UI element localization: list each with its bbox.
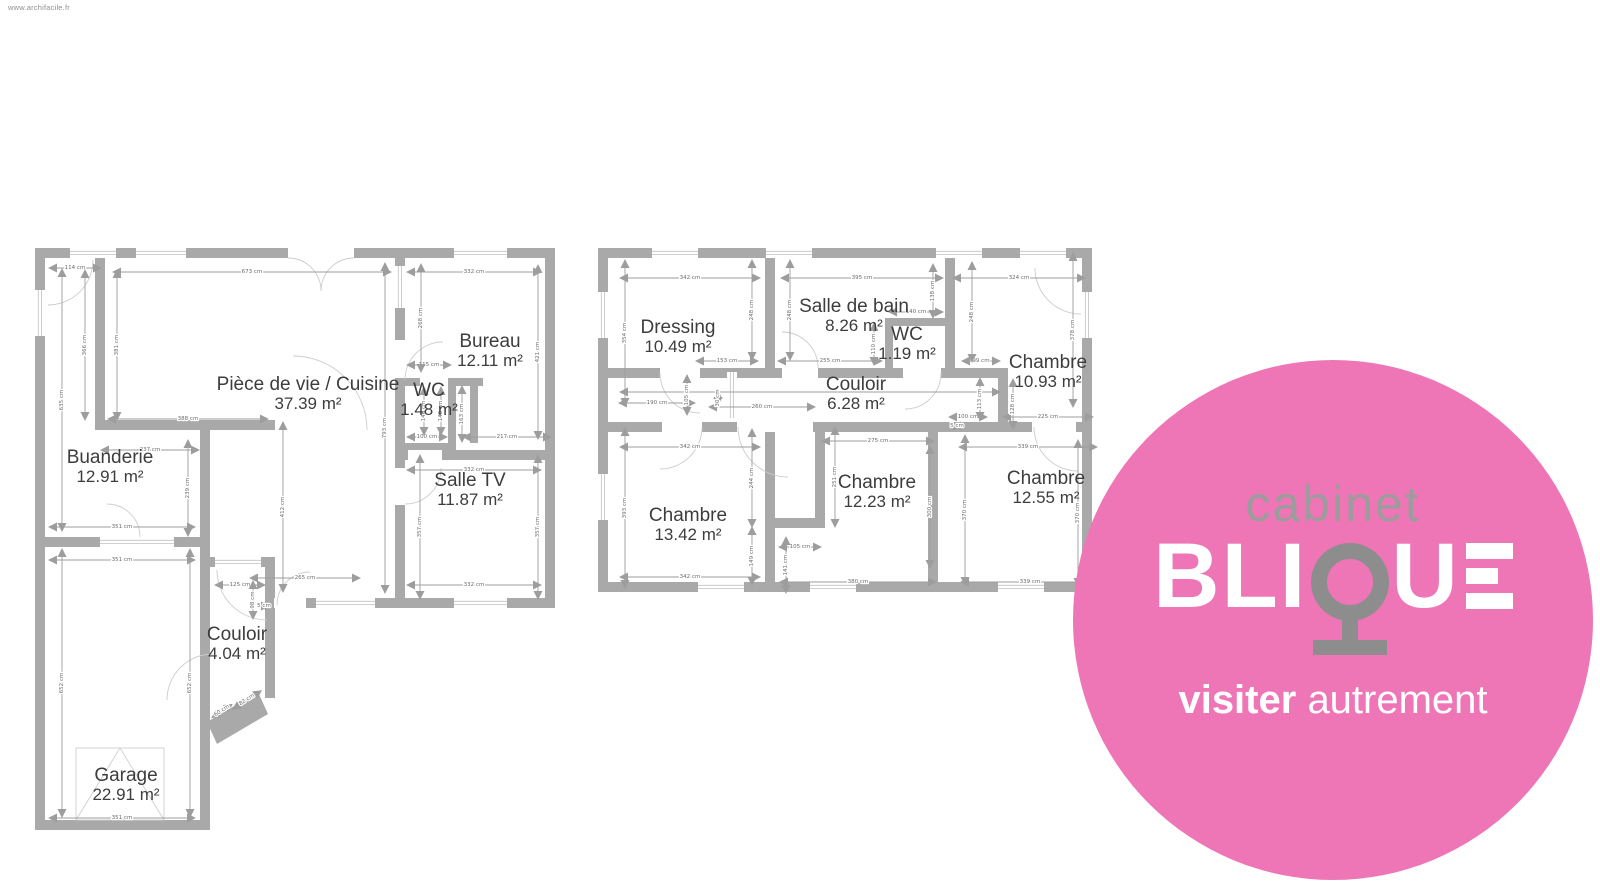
- wall-opening: [766, 248, 812, 258]
- dimension: 393 cm: [622, 428, 628, 588]
- dimension: 421 cm: [535, 265, 541, 439]
- dim-label: 5 cm: [950, 423, 964, 429]
- dim-label: 339 cm: [1018, 444, 1039, 450]
- dim-label: 395 cm: [852, 275, 873, 281]
- dim-label: 99 cm: [972, 358, 989, 364]
- dimension: 351 cm: [49, 557, 195, 563]
- dim-label: 275 cm: [868, 438, 889, 444]
- room-label: Chambre: [1007, 468, 1085, 489]
- dim-label: 393 cm: [622, 498, 628, 519]
- dimension: 635 cm: [59, 269, 65, 531]
- dimension: 370 cm: [962, 435, 968, 585]
- dimension: 163 cm: [459, 386, 465, 442]
- dim-label: 149 cm: [749, 546, 755, 567]
- dimension: 793 cm: [382, 263, 388, 593]
- dim-label: 105 cm: [684, 385, 690, 406]
- room-area: 6.28 m²: [827, 394, 885, 413]
- dim-label: 342 cm: [680, 574, 701, 580]
- dim-label: 366 cm: [82, 335, 88, 356]
- dim-label: 138 cm: [930, 281, 936, 302]
- logo-letters-bli: BLI: [1153, 530, 1307, 622]
- wall-opening: [70, 248, 116, 258]
- dimension: 149 cm: [749, 527, 755, 585]
- wall-opening: [454, 248, 507, 258]
- dimension: 366 cm: [82, 270, 88, 420]
- wall-opening: [662, 422, 702, 432]
- dim-label: 351 cm: [112, 524, 133, 530]
- dimension: 115 cm: [407, 362, 451, 368]
- dim-label: 239 cm: [185, 478, 191, 499]
- dim-label: 332 cm: [464, 582, 485, 588]
- dim-label: 412 cm: [280, 497, 286, 518]
- dim-label: 381 cm: [114, 335, 120, 356]
- dimension: 412 cm: [280, 422, 286, 592]
- dimension: 105 cm: [779, 544, 821, 550]
- wall-opening: [727, 372, 737, 418]
- wall-opening: [316, 598, 375, 608]
- dim-label: 260 cm: [752, 404, 773, 410]
- dimension: 339 cm: [959, 444, 1097, 450]
- dimension: 99 cm: [962, 358, 1000, 364]
- dim-label: 380 cm: [848, 579, 869, 585]
- dim-label: 105 cm: [790, 544, 811, 550]
- logo-letter-u: U: [1391, 530, 1459, 622]
- wall-opening: [395, 340, 405, 378]
- dimension: 332 cm: [407, 582, 541, 588]
- dim-label: 351 cm: [112, 557, 133, 563]
- wall-opening: [737, 422, 783, 432]
- room-area: 11.87 m²: [437, 490, 503, 509]
- dimension: 248 cm: [749, 260, 755, 360]
- wall-opening: [35, 290, 45, 336]
- dimension: 673 cm: [113, 269, 391, 275]
- logo-brand-blique: BLI U: [1153, 530, 1513, 648]
- dim-label: 113 cm: [977, 389, 983, 410]
- dim-label: 128 cm: [1010, 394, 1016, 415]
- dimension: 342 cm: [620, 275, 760, 281]
- dimension: 395 cm: [781, 275, 943, 281]
- dim-label: 100 cm: [958, 414, 979, 420]
- dim-label: 357 cm: [417, 517, 423, 538]
- wall-opening: [454, 598, 507, 608]
- dimension: 105 cm: [684, 375, 690, 415]
- room-label: Salle TV: [434, 470, 506, 491]
- logo-e-glyph: [1466, 543, 1513, 609]
- room-label: Couloir: [207, 624, 268, 645]
- wall-opening: [598, 474, 608, 520]
- dim-label: 354 cm: [622, 323, 628, 344]
- dimension: 652 cm: [59, 549, 65, 817]
- dim-label: 388 cm: [178, 416, 199, 422]
- dimension: 98 cm: [250, 581, 256, 619]
- dim-label: 248 cm: [969, 302, 975, 323]
- room-area: 12.23 m²: [843, 492, 910, 511]
- dimension: 239 cm: [185, 440, 191, 536]
- room-area: 12.11 m²: [457, 351, 523, 370]
- dim-label: 153 cm: [717, 358, 738, 364]
- wall-opening: [598, 292, 608, 338]
- dim-label: 98 cm: [250, 591, 256, 608]
- wall-opening: [136, 248, 186, 258]
- dim-label: 114 cm: [65, 265, 86, 271]
- dim-label: 339 cm: [1020, 579, 1041, 585]
- dimension: 153 cm: [696, 358, 758, 364]
- dim-label: 248 cm: [787, 300, 793, 321]
- wall-opening: [698, 582, 744, 592]
- room-labels: Pièce de vie / Cuisine37.39 m²Bureau12.1…: [67, 331, 524, 804]
- dimension: 324 cm: [953, 275, 1085, 281]
- logo-q-glyph: [1311, 542, 1389, 657]
- room-label: WC: [891, 324, 923, 345]
- room-area: 1.19 m²: [878, 344, 936, 363]
- ground-floor-plan: 114 cm673 cm332 cm115 cm388 cm237 cm351 …: [35, 248, 555, 830]
- dim-label: 673 cm: [242, 269, 263, 275]
- room-area: 10.93 m²: [1014, 372, 1081, 391]
- dim-label: 125 cm: [230, 582, 251, 588]
- dimension: 342 cm: [620, 444, 760, 450]
- dim-label: 370 cm: [962, 500, 968, 521]
- dim-label: 265 cm: [295, 575, 316, 581]
- dim-label: 332 cm: [464, 269, 485, 275]
- dim-label: 342 cm: [680, 275, 701, 281]
- room-label: Buanderie: [67, 447, 154, 468]
- wall-opening: [408, 450, 442, 460]
- dim-label: 793 cm: [382, 418, 388, 439]
- dimension: 275 cm: [822, 438, 934, 444]
- wall-opening: [395, 266, 405, 308]
- room-area: 10.49 m²: [644, 337, 711, 356]
- dimension: 357 cm: [417, 455, 423, 599]
- wall-opening: [936, 248, 982, 258]
- room-area: 37.39 m²: [274, 394, 341, 413]
- dim-label: 100 cm: [417, 434, 438, 440]
- dim-label: 342 cm: [680, 444, 701, 450]
- room-labels: Dressing10.49 m²Salle de bain8.26 m²WC1.…: [641, 296, 1088, 544]
- dim-label: 244 cm: [749, 468, 755, 489]
- dim-label: 190 cm: [647, 400, 668, 406]
- wall-opening: [782, 368, 818, 378]
- dimension: 225 cm: [1003, 414, 1093, 420]
- dimension: 351 cm: [49, 524, 195, 530]
- logo-tagline-light: autrement: [1307, 678, 1487, 722]
- dimension: 244 cm: [749, 429, 755, 527]
- dimension: 652 cm: [187, 549, 193, 817]
- dimension: 248 cm: [969, 262, 975, 362]
- room-label: Bureau: [459, 331, 520, 352]
- logo-tagline: visiter autrement: [1178, 678, 1487, 723]
- dim-label: 268 cm: [418, 308, 424, 329]
- dimension: 357 cm: [535, 455, 541, 599]
- dimension: 248 cm: [787, 260, 793, 360]
- dimension: 342 cm: [620, 574, 760, 580]
- room-label: Couloir: [826, 374, 887, 395]
- dim-label: 115 cm: [419, 362, 440, 368]
- dim-label: 225 cm: [1038, 414, 1059, 420]
- dim-label: 351 cm: [112, 815, 133, 821]
- room-area: 22.91 m²: [92, 785, 159, 804]
- room-area: 12.91 m²: [76, 467, 143, 486]
- dim-label: 141 cm: [783, 555, 789, 576]
- dim-label: 652 cm: [187, 673, 193, 694]
- dimension: 114 cm: [49, 265, 101, 271]
- dim-label: 635 cm: [59, 390, 65, 411]
- agency-logo-badge: cabinet BLI U visiter autrement: [1073, 360, 1593, 880]
- dimension: 332 cm: [407, 269, 541, 275]
- room-label: Chambre: [649, 505, 727, 526]
- dimension: 268 cm: [418, 264, 424, 372]
- dim-label: 217 cm: [497, 434, 518, 440]
- dim-label: 163 cm: [459, 404, 465, 425]
- room-label: WC: [413, 380, 445, 401]
- room-label: Garage: [94, 765, 157, 786]
- dimension: 381 cm: [114, 270, 120, 420]
- dim-label: 30 cm: [715, 389, 721, 406]
- wall-opening: [215, 557, 261, 567]
- wall-opening: [288, 248, 354, 258]
- room-label: Salle de bain: [799, 296, 909, 317]
- wall-opening: [777, 422, 813, 432]
- dimension: 30 cm: [715, 389, 721, 406]
- room-area: 4.04 m²: [208, 644, 266, 663]
- dim-label: 378 cm: [1070, 320, 1076, 341]
- floor-plan-page: www.archifacile.fr 114 cm673 cm332 cm115…: [0, 0, 1600, 882]
- wall-opening: [100, 537, 174, 547]
- dim-label: 357 cm: [535, 517, 541, 538]
- wall-opening: [1032, 422, 1076, 432]
- room-label: Dressing: [641, 317, 716, 338]
- dimension: 5 cm: [950, 423, 964, 429]
- dim-label: 248 cm: [749, 300, 755, 321]
- wall-opening: [395, 468, 405, 505]
- dimension: 260 cm: [709, 404, 815, 410]
- wall-opening: [1082, 292, 1092, 338]
- dim-label: 421 cm: [535, 342, 541, 363]
- first-floor-plan: 342 cm395 cm324 cm140 cm153 cm255 cm99 c…: [598, 248, 1099, 593]
- wall-opening: [1020, 248, 1066, 258]
- room-area: 8.26 m²: [825, 316, 883, 335]
- wall-opening: [652, 248, 698, 258]
- dimension: 354 cm: [622, 260, 628, 406]
- dimension: 125 cm: [215, 582, 265, 588]
- room-area: 13.42 m²: [654, 525, 721, 544]
- dimension: 255 cm: [778, 358, 882, 364]
- room-label: Chambre: [838, 472, 916, 493]
- dim-label: 652 cm: [59, 673, 65, 694]
- dim-label: 300 cm: [927, 497, 933, 518]
- room-label: Chambre: [1009, 352, 1087, 373]
- room-area: 12.55 m²: [1012, 488, 1079, 507]
- dimension: 5 cm: [257, 603, 271, 609]
- dim-label: 110 cm: [871, 334, 877, 355]
- wall-opening: [274, 598, 306, 608]
- logo-word-cabinet: cabinet: [1245, 482, 1420, 526]
- dimension: 100 cm: [949, 414, 987, 420]
- room-area: 1.48 m²: [400, 400, 458, 419]
- dim-label: 5 cm: [257, 603, 271, 609]
- wall-opening: [660, 368, 700, 378]
- logo-tagline-bold: visiter: [1178, 678, 1296, 722]
- wall-opening: [903, 368, 941, 378]
- dim-label: 255 cm: [820, 358, 841, 364]
- dimension: 138 cm: [930, 264, 936, 318]
- room-label: Pièce de vie / Cuisine: [217, 374, 400, 395]
- dim-label: 324 cm: [1009, 275, 1030, 281]
